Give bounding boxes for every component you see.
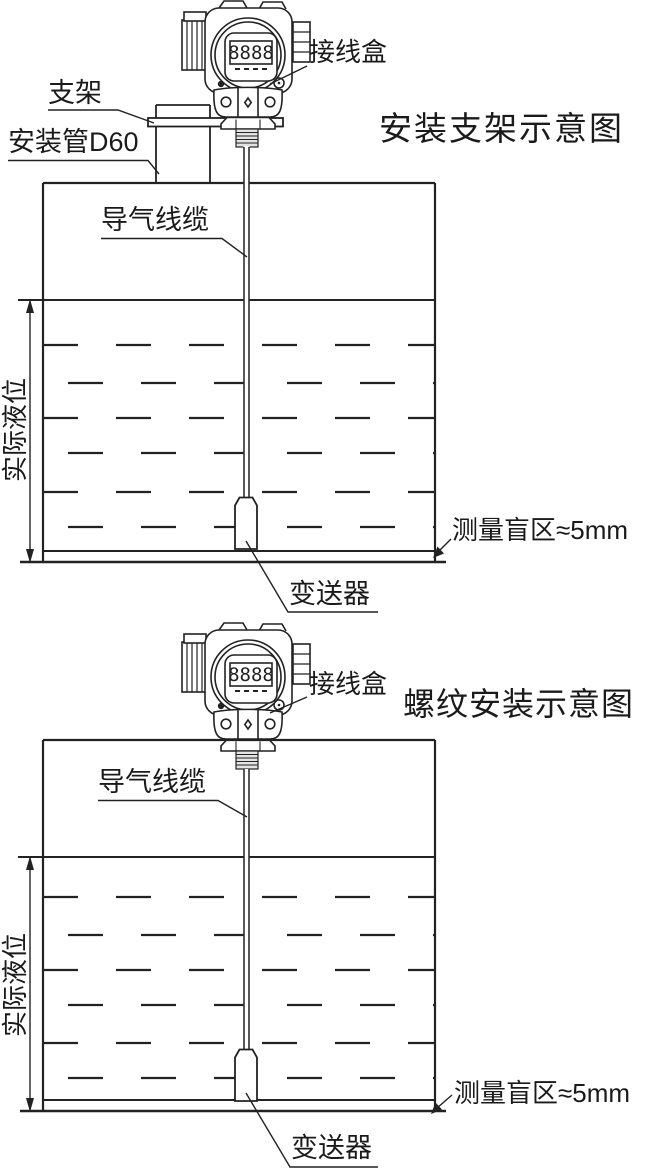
label-actual-level-top: 实际液位 [2,360,30,500]
tank-outline-top [18,183,446,562]
label-air-cable-top: 导气线缆 [101,206,209,234]
label-air-cable-bottom: 导气线缆 [98,768,206,796]
label-mounting-pipe: 安装管D60 [8,128,139,156]
label-transmitter-top: 变送器 [289,580,370,608]
diagram-title-top: 安装支架示意图 [379,112,624,147]
transmitter-head-bottom [182,623,310,769]
diagram-title-bottom: 螺纹安装示意图 [403,688,634,722]
label-blind-zone-top: 测量盲区≈5mm [452,517,628,544]
air-cable-bottom [243,769,249,1052]
air-cable-top [243,146,249,500]
mounting-pipe-top [156,105,210,183]
label-actual-level-bottom: 实际液位 [2,915,30,1055]
label-junction-box-top: 接线盒 [309,39,387,66]
tank-outline-bottom [18,740,446,1111]
label-transmitter-bottom: 变送器 [291,1134,372,1162]
label-blind-zone-bottom: 测量盲区≈5mm [454,1080,630,1107]
label-junction-box-bottom: 接线盒 [309,671,387,698]
label-bracket: 支架 [48,79,102,107]
installation-schematic-page: 8888 [0,0,650,1171]
threaded-installation-diagram [18,623,452,1167]
